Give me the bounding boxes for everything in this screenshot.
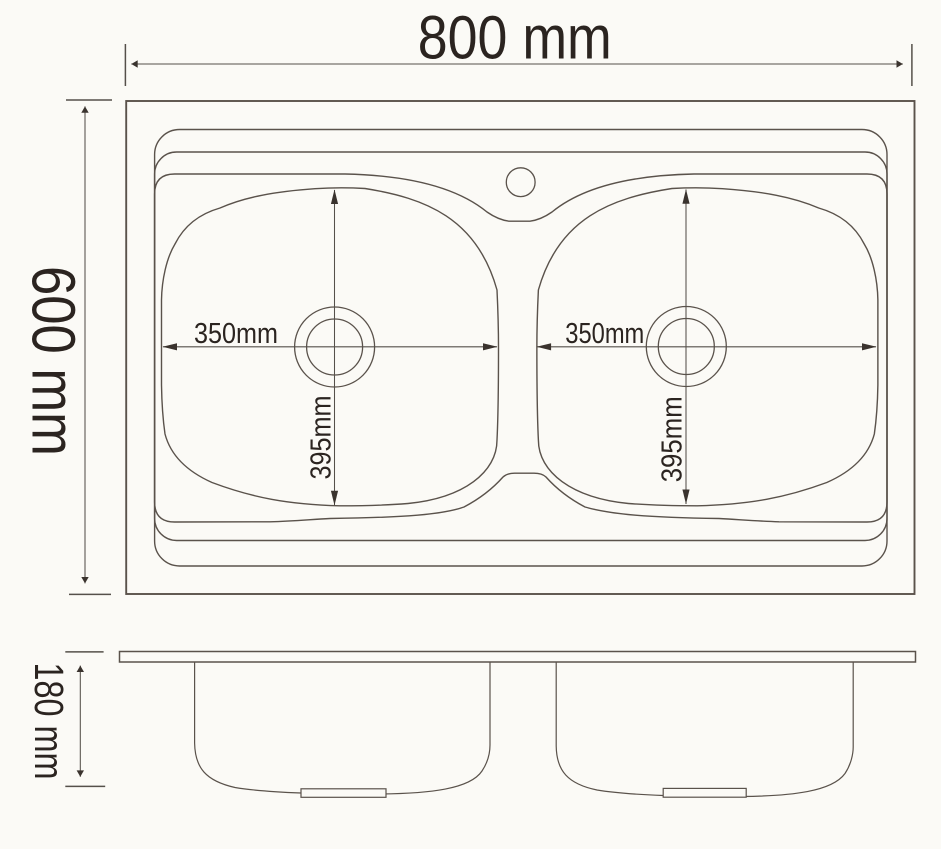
svg-text:350mm: 350mm <box>565 318 644 350</box>
svg-text:800 mm: 800 mm <box>418 4 612 72</box>
svg-text:180 mm: 180 mm <box>26 663 72 780</box>
svg-text:350mm: 350mm <box>194 318 278 350</box>
svg-text:395mm: 395mm <box>656 396 688 482</box>
svg-text:395mm: 395mm <box>306 396 338 480</box>
svg-text:600 mm: 600 mm <box>20 266 88 456</box>
